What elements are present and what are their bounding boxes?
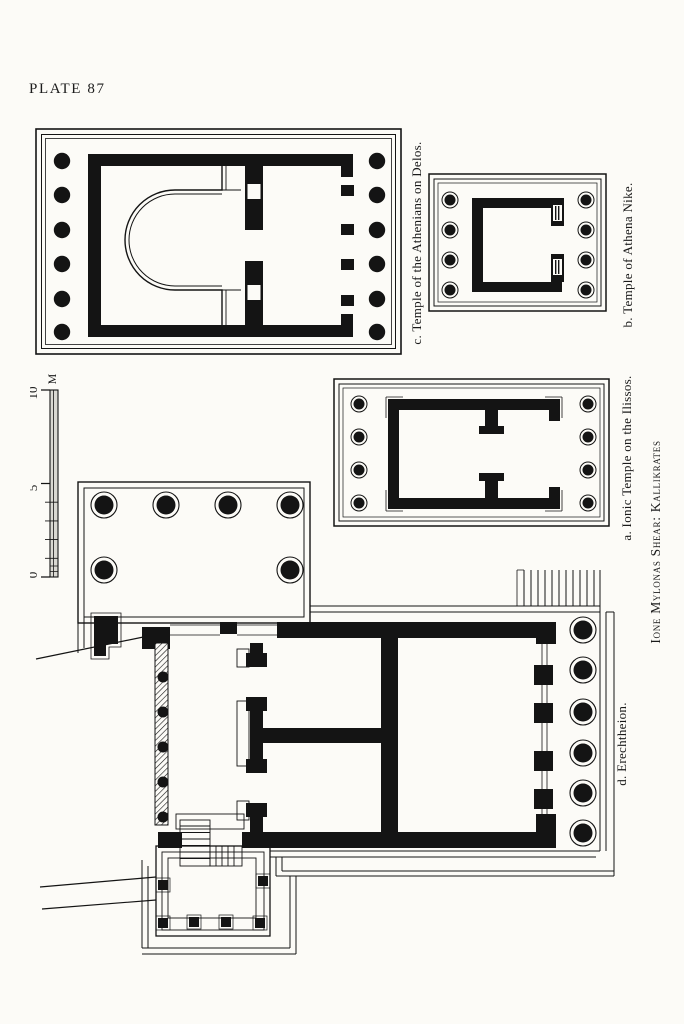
caption-plan-c: c. Temple of the Athenians on Delos.	[409, 141, 425, 344]
cella-walls	[88, 154, 354, 337]
scale-label-10: 10	[30, 387, 40, 400]
colonnade-columns	[54, 153, 385, 340]
pillars-between-antae	[553, 205, 562, 275]
porch-staircase	[176, 814, 244, 866]
plate-number-label: PLATE 87	[29, 81, 106, 98]
north-porch-columns	[91, 492, 303, 583]
east-portico-columns	[570, 617, 596, 846]
caption-plan-d: d. Erechtheion.	[614, 702, 630, 786]
floor-plan-erechtheion	[30, 475, 630, 975]
scale-unit-label: M	[45, 373, 59, 384]
caption-plan-b: b. Temple of Athena Nike.	[620, 183, 636, 328]
apse-foundation	[125, 166, 241, 325]
east-terrace-steps	[310, 570, 614, 871]
acropolis-wall-lines	[40, 877, 156, 909]
scanned-plate-page: PLATE 87	[0, 0, 684, 1024]
south-boundary-steps	[142, 851, 614, 954]
west-chamber-door-jambs	[237, 649, 249, 820]
caryatid-statues	[156, 874, 270, 930]
caption-plan-a: a. Ionic Temple on the Ilissos.	[619, 375, 635, 540]
floor-plan-temple-athena-nike	[428, 173, 608, 313]
cella-walls	[472, 198, 564, 292]
doorway-thresholds	[170, 625, 547, 814]
floor-plan-temple-athenians-delos	[35, 128, 403, 356]
author-credit: Ione Mylonas Shear: Kallikrates	[648, 440, 664, 643]
northwest-anta-pier	[91, 613, 121, 659]
